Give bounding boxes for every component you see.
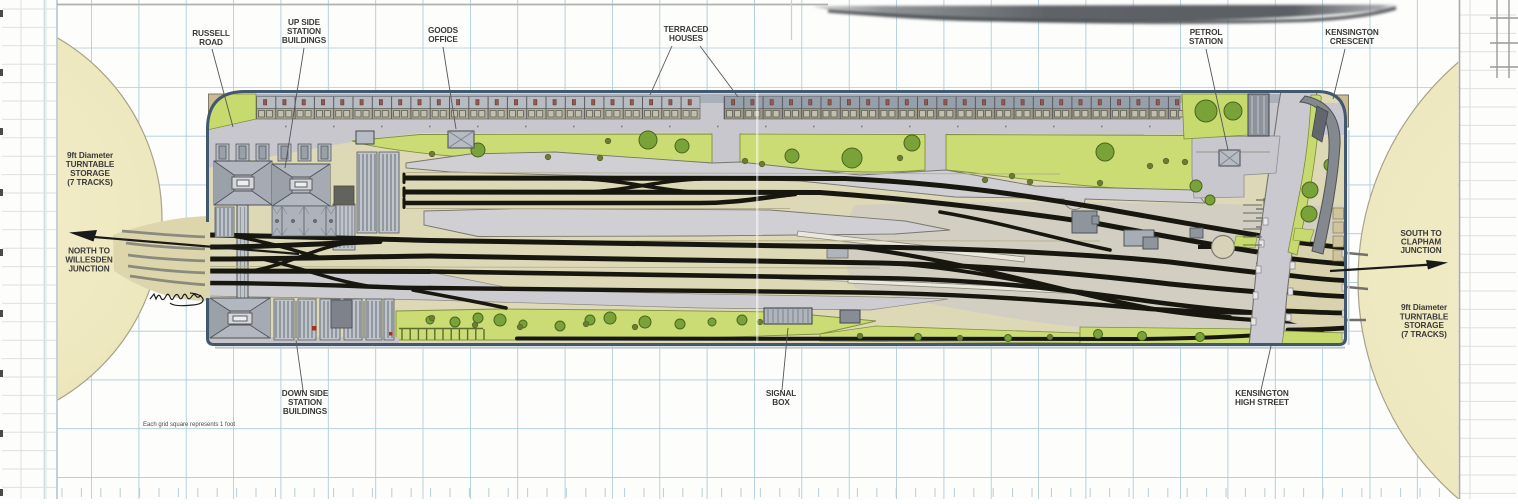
svg-text:TERRACEDHOUSES: TERRACEDHOUSES (664, 25, 709, 43)
svg-text:Each grid square represents 1: Each grid square represents 1 foot (143, 422, 235, 428)
svg-text:NORTH TOWILLESDENJUNCTION: NORTH TOWILLESDENJUNCTION (65, 247, 113, 274)
svg-text:PETROLSTATION: PETROLSTATION (1189, 28, 1223, 46)
svg-text:GOODSOFFICE: GOODSOFFICE (428, 26, 459, 44)
svg-text:9ft DiameterTURNTABLESTORAGE(7: 9ft DiameterTURNTABLESTORAGE(7 TRACKS) (1400, 303, 1449, 339)
svg-text:DOWN SIDESTATIONBUILDINGS: DOWN SIDESTATIONBUILDINGS (282, 389, 329, 416)
svg-text:SOUTH TOCLAPHAMJUNCTION: SOUTH TOCLAPHAMJUNCTION (1400, 229, 1442, 255)
svg-text:KENSINGTONCRESCENT: KENSINGTONCRESCENT (1325, 28, 1379, 46)
svg-text:KENSINGTONHIGH STREET: KENSINGTONHIGH STREET (1235, 389, 1289, 407)
svg-text:9ft DiameterTURNTABLESTORAGE(7: 9ft DiameterTURNTABLESTORAGE(7 TRACKS) (66, 151, 115, 187)
